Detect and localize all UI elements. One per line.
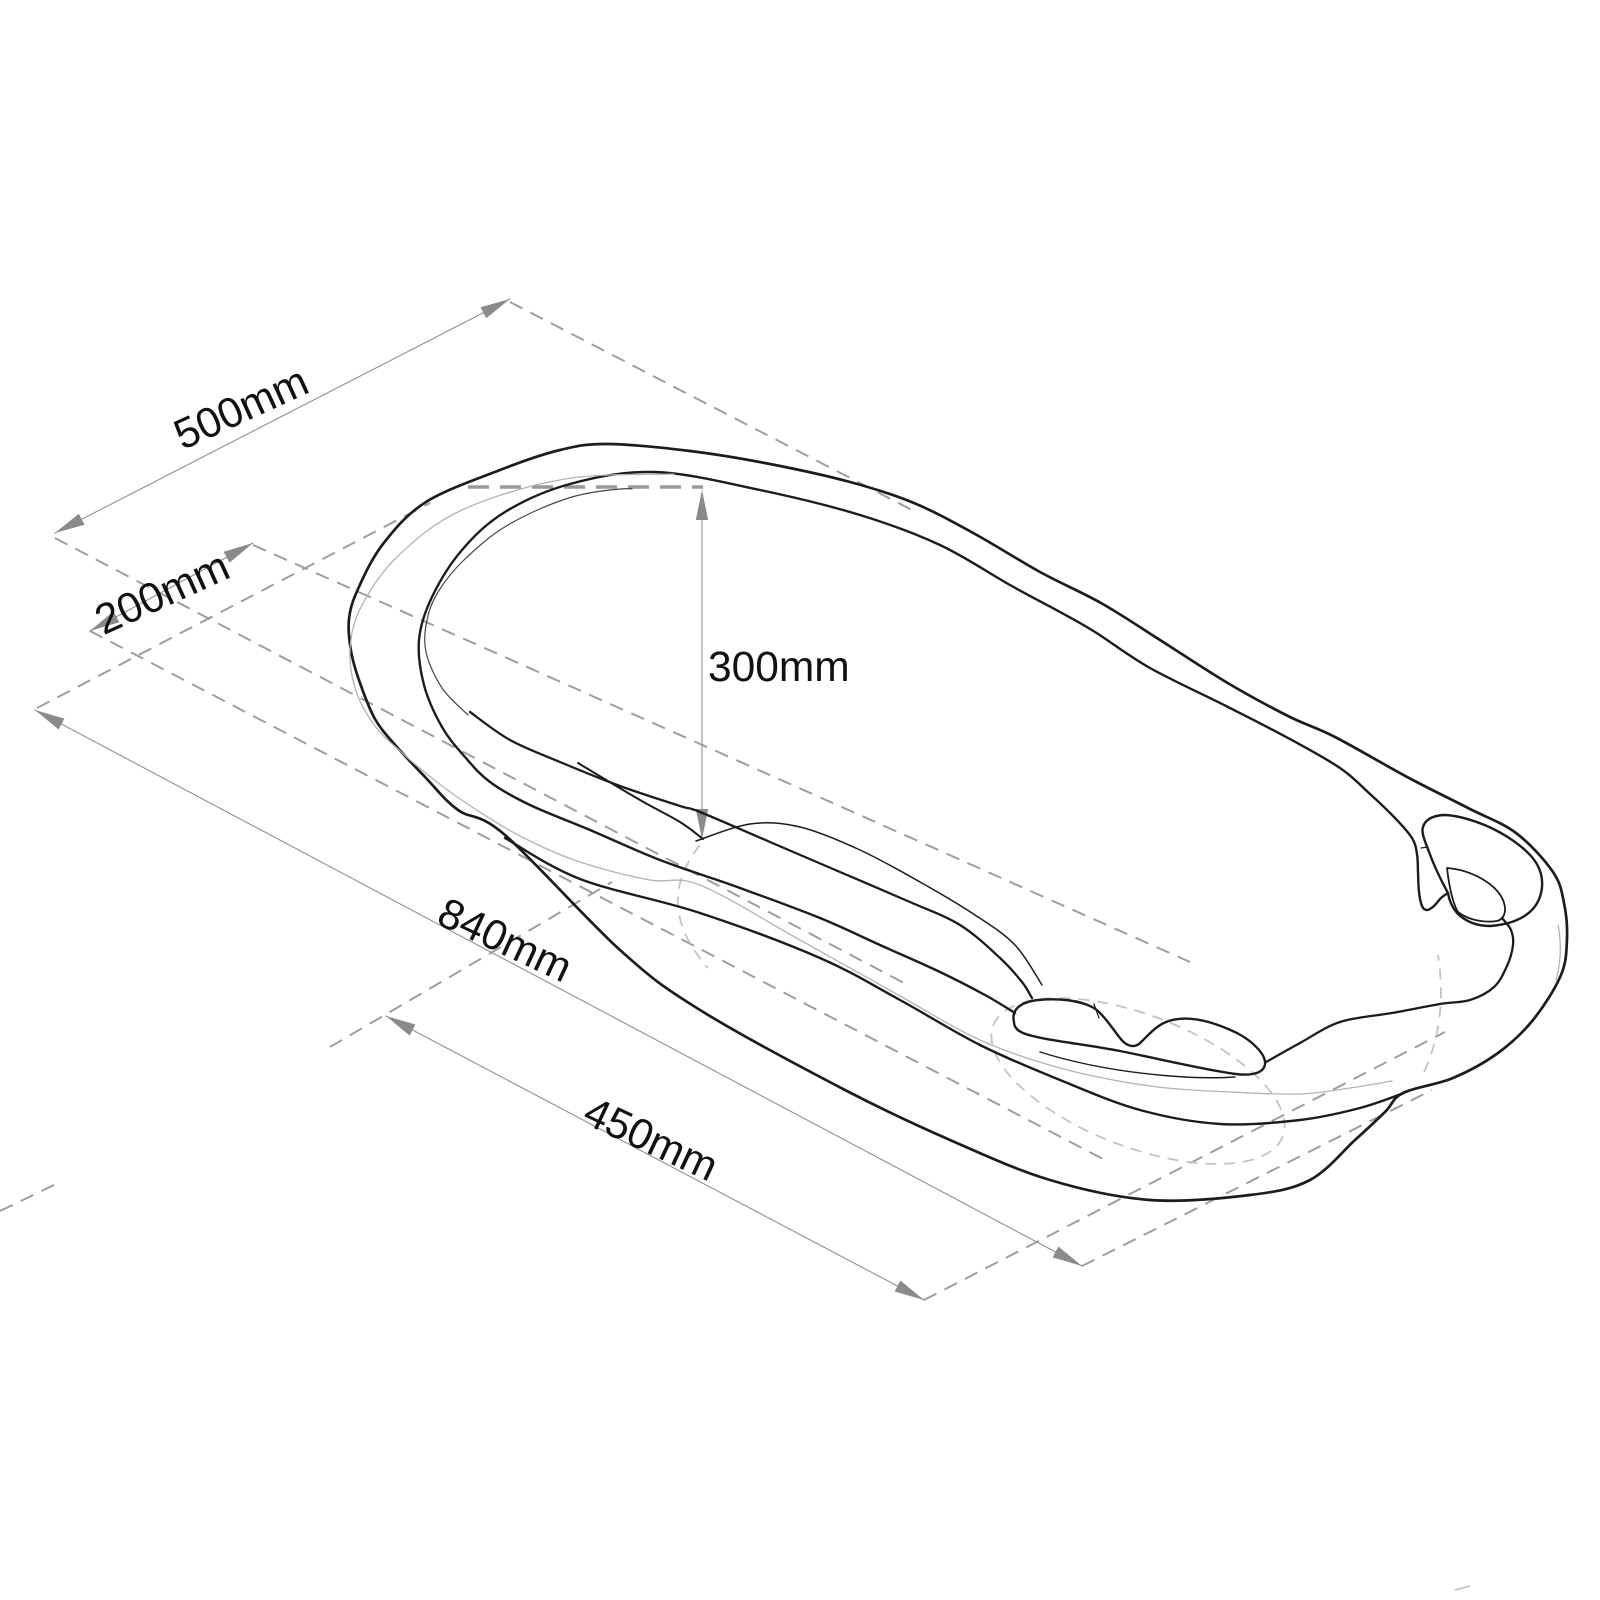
svg-text:300mm: 300mm	[708, 644, 850, 691]
